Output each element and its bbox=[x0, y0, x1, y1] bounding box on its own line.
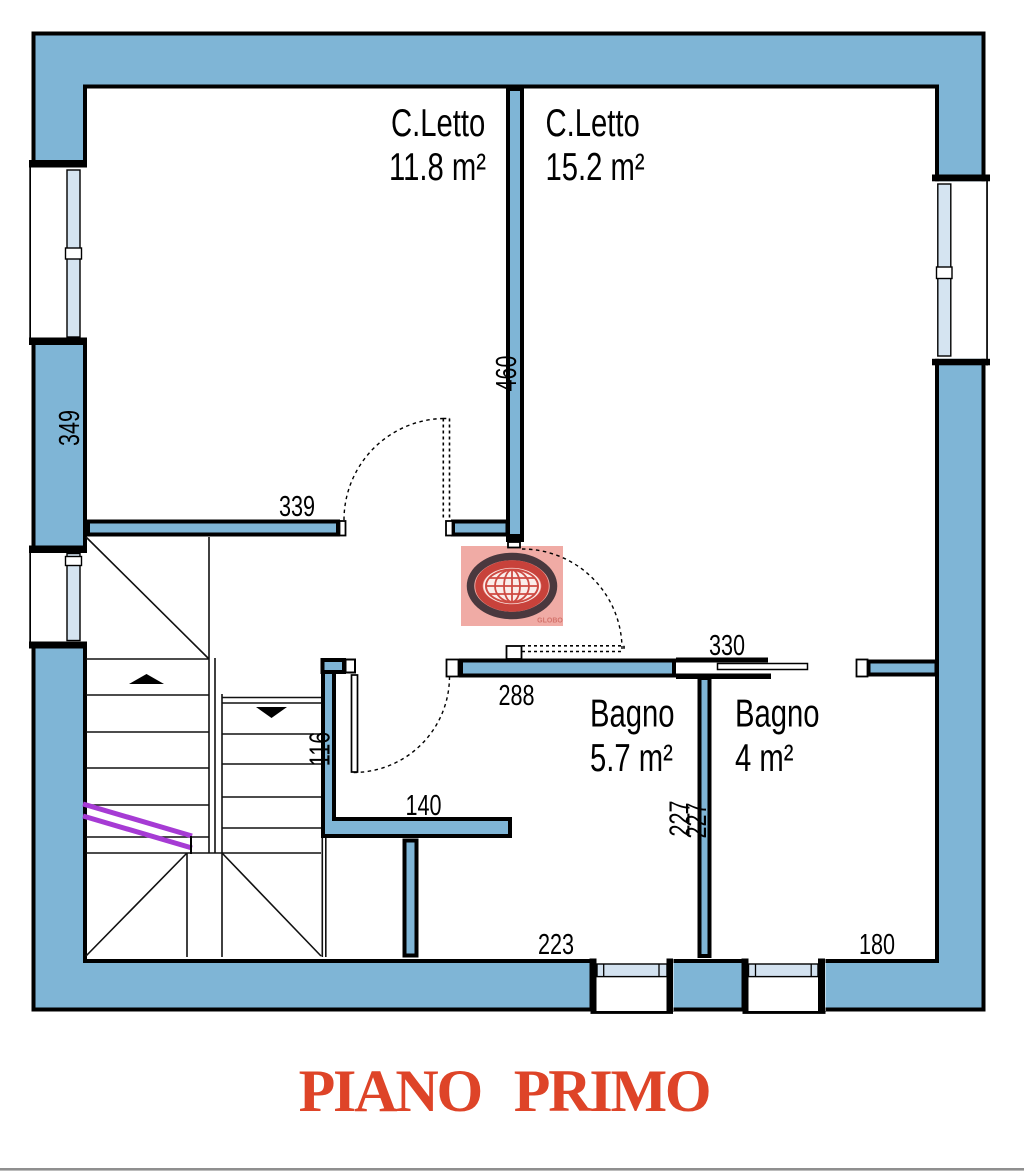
svg-text:330: 330 bbox=[709, 630, 745, 662]
svg-text:5.7 m²: 5.7 m² bbox=[590, 737, 673, 780]
svg-text:349: 349 bbox=[54, 410, 86, 446]
svg-text:11.8 m²: 11.8 m² bbox=[389, 146, 486, 189]
svg-text:223: 223 bbox=[538, 929, 574, 961]
svg-text:C.Letto: C.Letto bbox=[391, 102, 485, 145]
svg-text:4 m²: 4 m² bbox=[735, 737, 793, 780]
svg-text:Bagno: Bagno bbox=[735, 693, 820, 736]
svg-text:460: 460 bbox=[491, 355, 523, 391]
svg-text:227: 227 bbox=[681, 802, 713, 838]
svg-text:140: 140 bbox=[405, 790, 441, 822]
svg-text:GLOBO: GLOBO bbox=[537, 618, 563, 625]
svg-text:288: 288 bbox=[498, 680, 534, 712]
svg-text:180: 180 bbox=[859, 929, 895, 961]
svg-text:116: 116 bbox=[305, 732, 337, 766]
svg-text:Bagno: Bagno bbox=[590, 693, 675, 736]
svg-text:PIANO PRIMO: PIANO PRIMO bbox=[299, 1058, 710, 1124]
svg-text:15.2 m²: 15.2 m² bbox=[546, 146, 645, 189]
svg-text:339: 339 bbox=[279, 491, 315, 523]
svg-text:C.Letto: C.Letto bbox=[546, 102, 640, 145]
